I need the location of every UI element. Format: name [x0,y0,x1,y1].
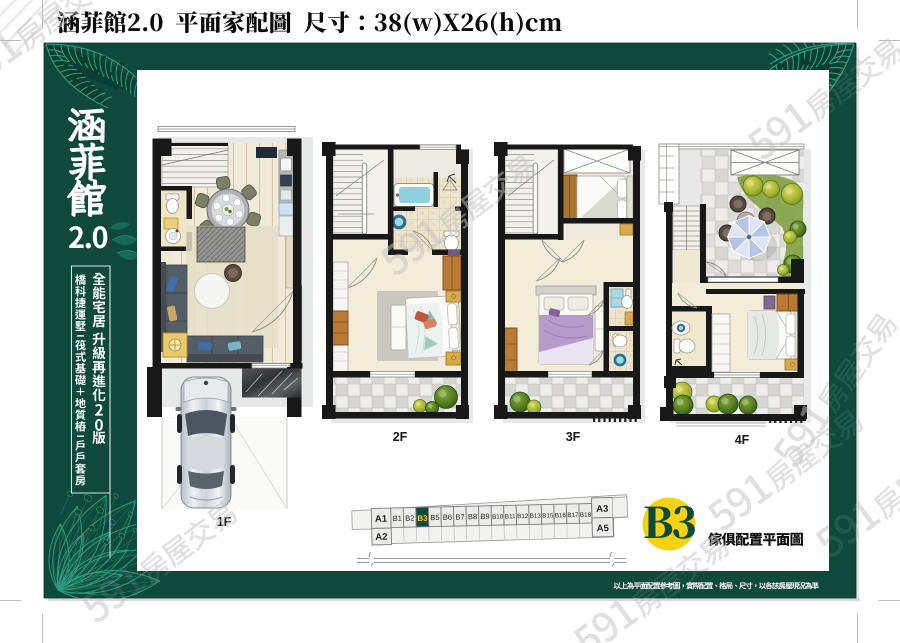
svg-text:B10: B10 [492,513,504,520]
svg-text:3F: 3F [566,430,581,444]
svg-text:B15: B15 [542,512,554,519]
svg-text:B18: B18 [580,511,592,518]
svg-text:B16: B16 [555,512,567,519]
svg-text:B7: B7 [455,512,464,521]
svg-text:B1: B1 [393,514,402,523]
svg-text:B11: B11 [505,513,516,520]
svg-text:B2: B2 [405,514,414,523]
svg-text:B12: B12 [517,513,529,520]
svg-text:B8: B8 [468,512,477,521]
svg-text:A5: A5 [597,523,610,534]
svg-text:B3: B3 [417,514,428,523]
svg-text:B13: B13 [530,513,542,520]
svg-text:A1: A1 [375,514,388,525]
svg-text:A3: A3 [596,504,608,515]
svg-text:A2: A2 [375,532,387,543]
svg-text:B6: B6 [443,513,452,522]
svg-text:B9: B9 [480,512,489,521]
svg-text:2F: 2F [393,430,408,444]
svg-text:B17: B17 [567,512,579,519]
svg-text:4F: 4F [735,433,750,447]
svg-text:B5: B5 [430,513,439,522]
